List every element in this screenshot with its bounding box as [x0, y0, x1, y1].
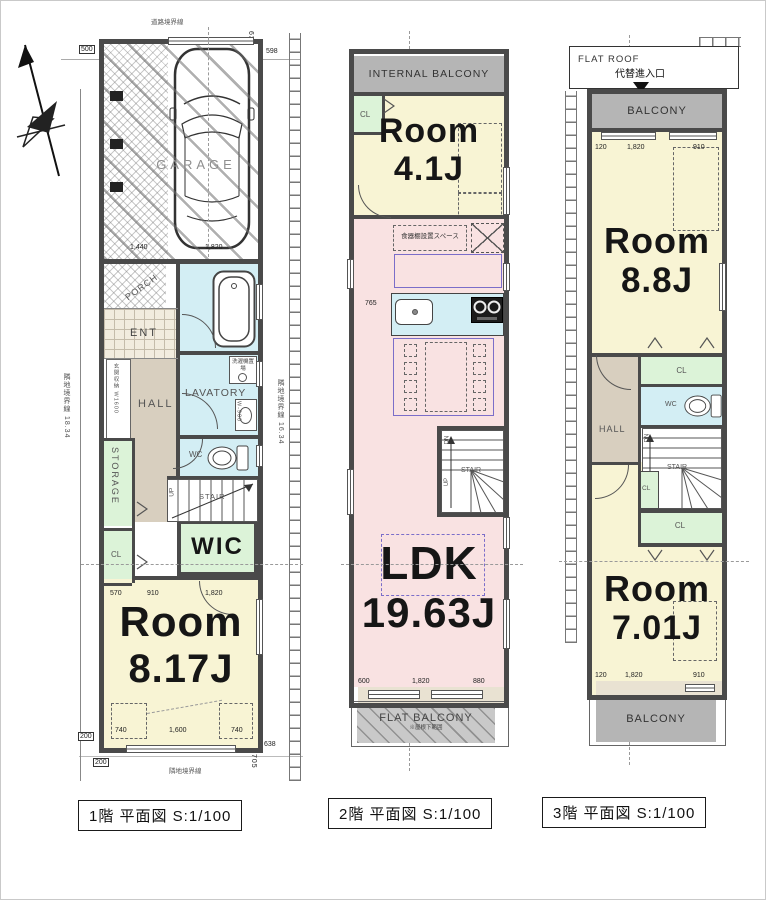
wall-segment — [638, 509, 722, 513]
dim-label: 880 — [473, 678, 485, 685]
dim-line — [79, 756, 303, 757]
closet-a-label: CL — [641, 367, 722, 375]
dim-label: 200 — [78, 732, 94, 741]
step-line — [104, 308, 178, 309]
dim-label: 1,820 — [205, 590, 223, 597]
room-1f-size: 8.17J — [104, 649, 258, 689]
dim-label: 200 — [93, 758, 109, 767]
stair-label-2f: STAIR — [461, 467, 481, 474]
wic-label: WIC — [181, 535, 254, 559]
room-a-size: 8.8J — [592, 263, 722, 298]
dim-label: 638 — [264, 741, 276, 748]
step-line — [104, 358, 178, 359]
window-mark — [347, 259, 354, 289]
hall-label-1f: HALL — [138, 399, 174, 410]
dim-label: 598 — [266, 48, 278, 55]
room-a-name: Room — [592, 223, 722, 259]
dim-label: 120 — [595, 672, 607, 679]
dim-label: 910 — [693, 672, 705, 679]
north-arrow-icon — [9, 31, 73, 181]
wall-segment — [437, 513, 504, 517]
flat-roof-label: FLAT ROOF — [578, 55, 639, 65]
internal-balcony-label: INTERNAL BALCONY — [354, 69, 504, 80]
closet-door-mark — [136, 501, 148, 517]
section-line — [559, 561, 749, 562]
up-label-2f: UP — [444, 478, 450, 486]
wc-label-1f: WC — [189, 451, 202, 459]
closet-door-mark — [647, 337, 663, 349]
room-2f-name: Room — [354, 114, 504, 148]
closet-door-mark — [699, 549, 715, 561]
flat-balcony-note: ※屋根下範囲 — [357, 726, 495, 732]
flat-balcony-floor — [357, 705, 495, 743]
dn-label-3f: DN — [644, 434, 650, 443]
wall-segment — [180, 351, 258, 355]
window-mark — [126, 745, 236, 753]
stair-label-1f: STAIR — [199, 493, 226, 501]
wall-segment — [132, 576, 258, 580]
wall-segment — [132, 438, 135, 583]
wall-segment — [641, 425, 722, 428]
dim-label: 765 — [365, 300, 377, 307]
window-mark — [256, 284, 263, 320]
dim-label: 120 — [595, 144, 607, 151]
floorplan-sheet: 道路境界線 隣地境界線 18.34 隣地境界線 16.34 隣地境界線 500 … — [0, 0, 766, 900]
window-mark — [256, 445, 263, 467]
closet-b-label: CL — [642, 486, 650, 493]
ldk-name: LDK — [354, 540, 504, 586]
closet-door-mark — [699, 337, 715, 349]
window-mark — [669, 132, 717, 140]
caption-2f: 2階 平面図 S:1/100 — [328, 798, 492, 829]
room-b-name: Room — [592, 571, 722, 607]
wall-segment — [638, 353, 641, 543]
window-mark — [503, 599, 510, 649]
wall-segment — [437, 426, 441, 517]
window-mark — [503, 263, 510, 291]
window-mark — [368, 690, 420, 699]
wall-segment — [167, 476, 258, 479]
window-mark — [431, 690, 483, 699]
window-mark — [685, 684, 715, 692]
room-1f-name: Room — [104, 601, 258, 643]
dn-label-2f: DN — [444, 436, 450, 445]
ldk-size: 19.63J — [354, 592, 504, 634]
center-line — [208, 27, 209, 257]
dim-label: 570 — [110, 590, 122, 597]
wall-segment — [104, 259, 258, 264]
window-mark — [347, 469, 354, 515]
wall-segment — [104, 528, 132, 531]
flat-roof-outline — [569, 46, 739, 89]
dim-label: 1,820 — [627, 144, 645, 151]
section-line — [341, 564, 523, 565]
window-mark — [256, 361, 263, 387]
window-mark — [601, 132, 656, 140]
window-mark — [503, 167, 510, 215]
dim-label: 740 — [231, 727, 243, 734]
section-line — [81, 564, 303, 565]
entrance-label: ENT — [130, 328, 158, 339]
dim-label: 500 — [79, 45, 95, 54]
boundary-label-bottom: 隣地境界線 — [169, 769, 202, 776]
wall-segment — [104, 438, 132, 441]
balcony-top-label: BALCONY — [592, 106, 722, 117]
closet-door-mark — [647, 549, 663, 561]
dim-label: 1,820 — [412, 678, 430, 685]
room-2f-size: 4.1J — [354, 152, 504, 186]
wall-segment — [441, 426, 504, 430]
flat-balcony-label: FLAT BALCONY — [357, 713, 495, 724]
stair-label-3f: STAIR — [667, 464, 687, 471]
caption-3f: 3階 平面図 S:1/100 — [542, 797, 706, 828]
wc-label-3f: WC — [665, 401, 677, 408]
up-label-1f: UP — [169, 488, 176, 497]
boundary-label-top: 道路境界線 — [151, 20, 184, 27]
wall-segment — [354, 215, 504, 219]
entrance-cabinet-label: 玄関収納 W1600 — [112, 363, 118, 414]
wall-segment — [104, 583, 132, 586]
dim-label: 910 — [147, 590, 159, 597]
wall-segment — [641, 384, 722, 387]
dim-label: 1,820 — [625, 672, 643, 679]
dim-label: 1,440 — [130, 244, 148, 251]
balcony-bottom-label: BALCONY — [596, 714, 716, 725]
site-boundary-right — [289, 33, 301, 781]
caption-1f: 1階 平面図 S:1/100 — [78, 800, 242, 831]
closet-label-1f: CL — [111, 551, 121, 559]
dim-label: 740 — [115, 727, 127, 734]
dim-label: 910 — [693, 144, 705, 151]
closet-c-label: CL — [638, 522, 722, 530]
lavatory-label: LAVATORY — [185, 388, 246, 399]
site-boundary-left — [80, 89, 81, 781]
garage-door-opening — [168, 37, 254, 45]
wall-segment — [354, 92, 504, 96]
wall-segment — [638, 543, 722, 547]
entry-label: 代替進入口 — [615, 70, 665, 80]
dim-label: 705 — [250, 754, 257, 769]
window-mark — [503, 517, 510, 549]
boundary-label-left: 隣地境界線 18.34 — [63, 373, 70, 438]
storage-label: STORAGE — [110, 447, 119, 505]
closet-door-mark — [136, 554, 148, 570]
hall-label-3f: HALL — [599, 425, 626, 434]
dim-label: 1,600 — [169, 727, 187, 734]
garage-label: GARAGE — [146, 158, 246, 171]
boundary-label-right: 隣地境界線 16.34 — [277, 379, 284, 444]
dim-label: 600 — [358, 678, 370, 685]
room-b-size: 7.01J — [592, 611, 722, 645]
